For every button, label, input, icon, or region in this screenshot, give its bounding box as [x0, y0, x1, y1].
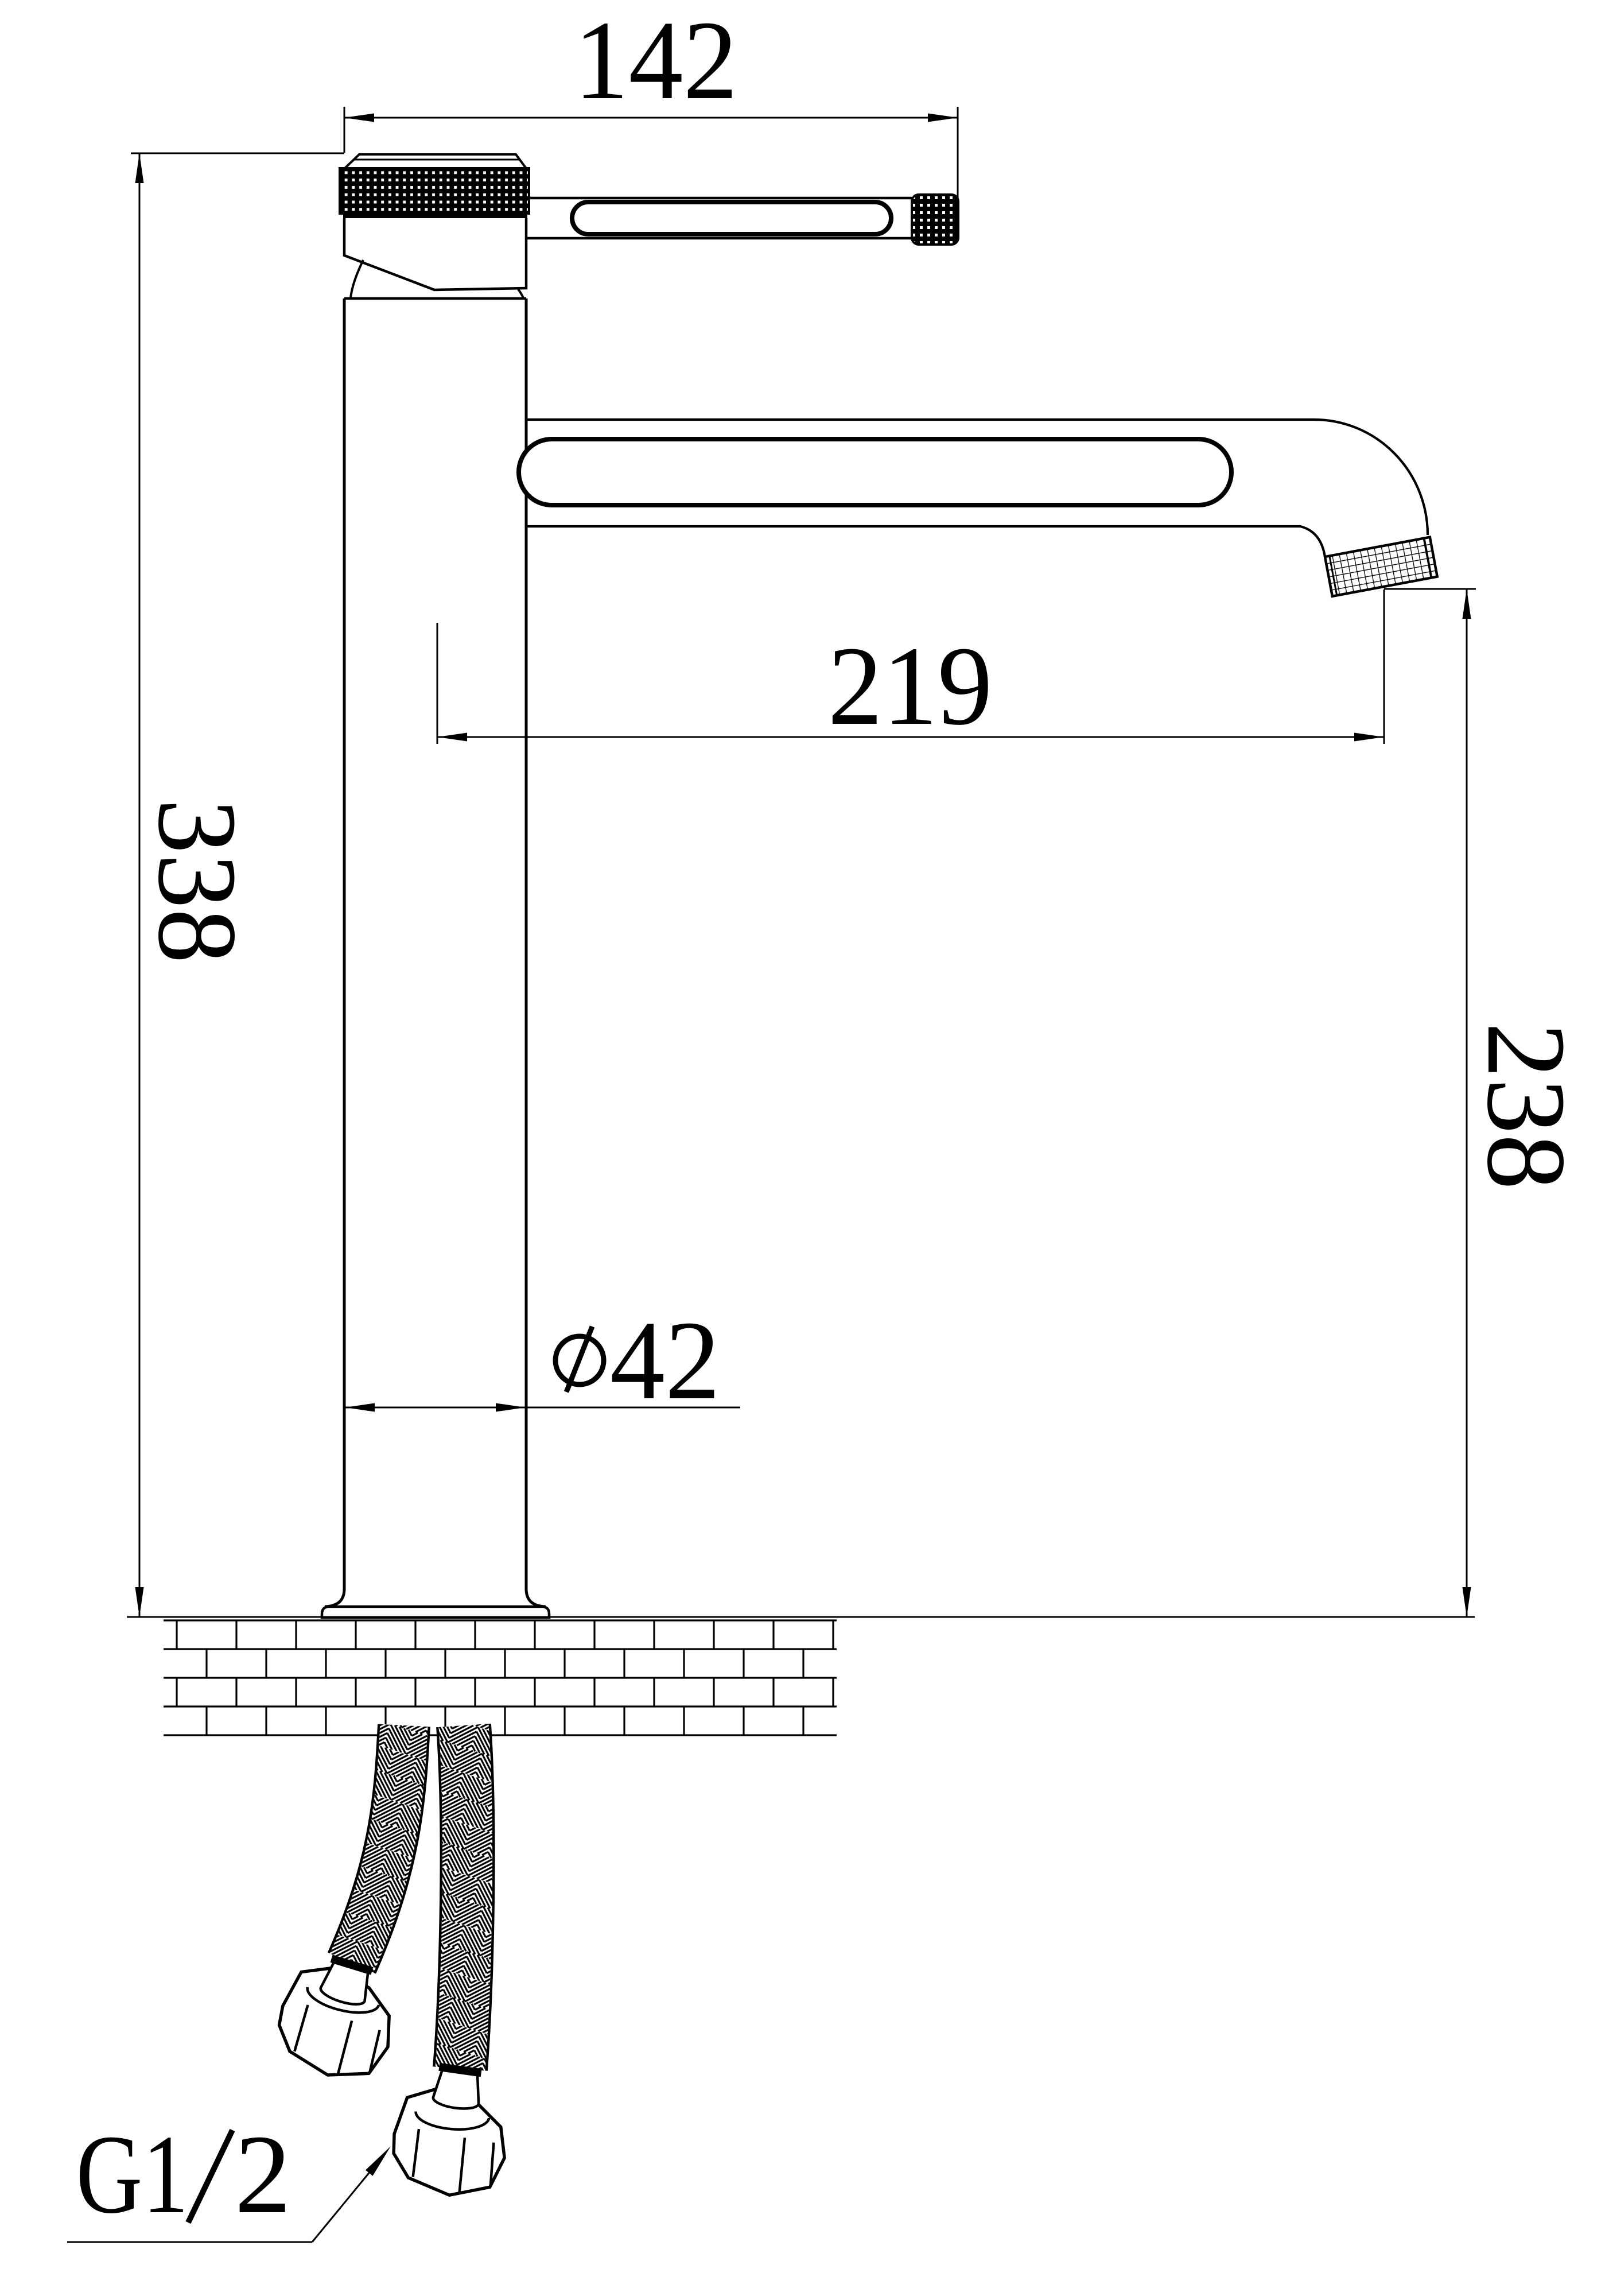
svg-text:142: 142 — [574, 0, 738, 123]
svg-text:42: 42 — [610, 1297, 720, 1423]
svg-text:219: 219 — [828, 623, 993, 748]
svg-text:2: 2 — [235, 2111, 292, 2237]
svg-text:338: 338 — [135, 799, 261, 964]
svg-text:238: 238 — [1464, 1022, 1589, 1190]
svg-text:G1: G1 — [76, 2111, 189, 2237]
